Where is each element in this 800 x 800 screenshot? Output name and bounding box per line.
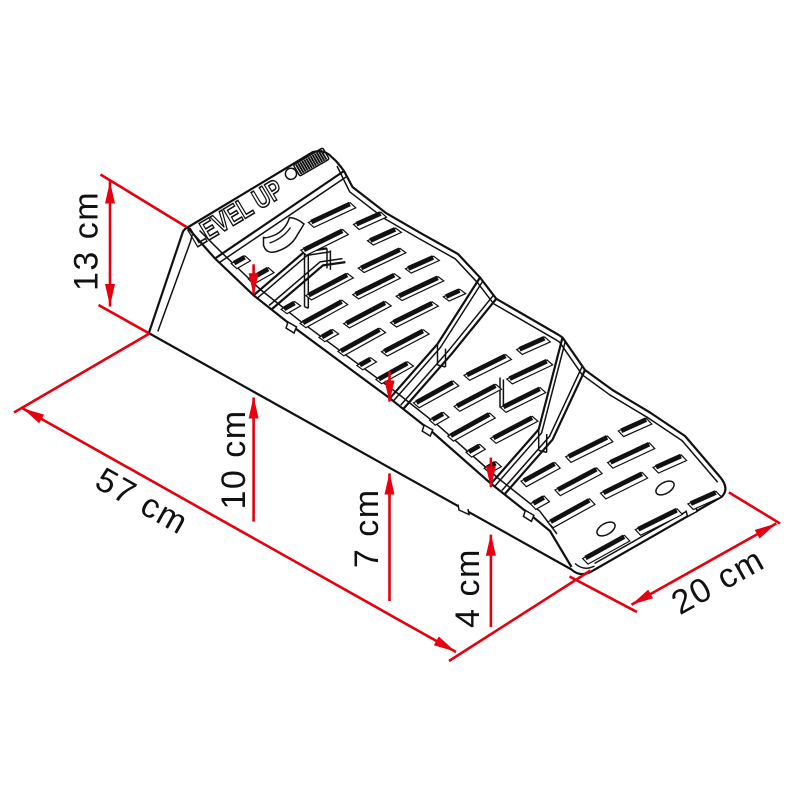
svg-text:13 cm: 13 cm (67, 191, 105, 291)
svg-text:7 cm: 7 cm (348, 488, 386, 568)
svg-text:10 cm: 10 cm (215, 409, 253, 509)
svg-text:4 cm: 4 cm (449, 548, 487, 628)
